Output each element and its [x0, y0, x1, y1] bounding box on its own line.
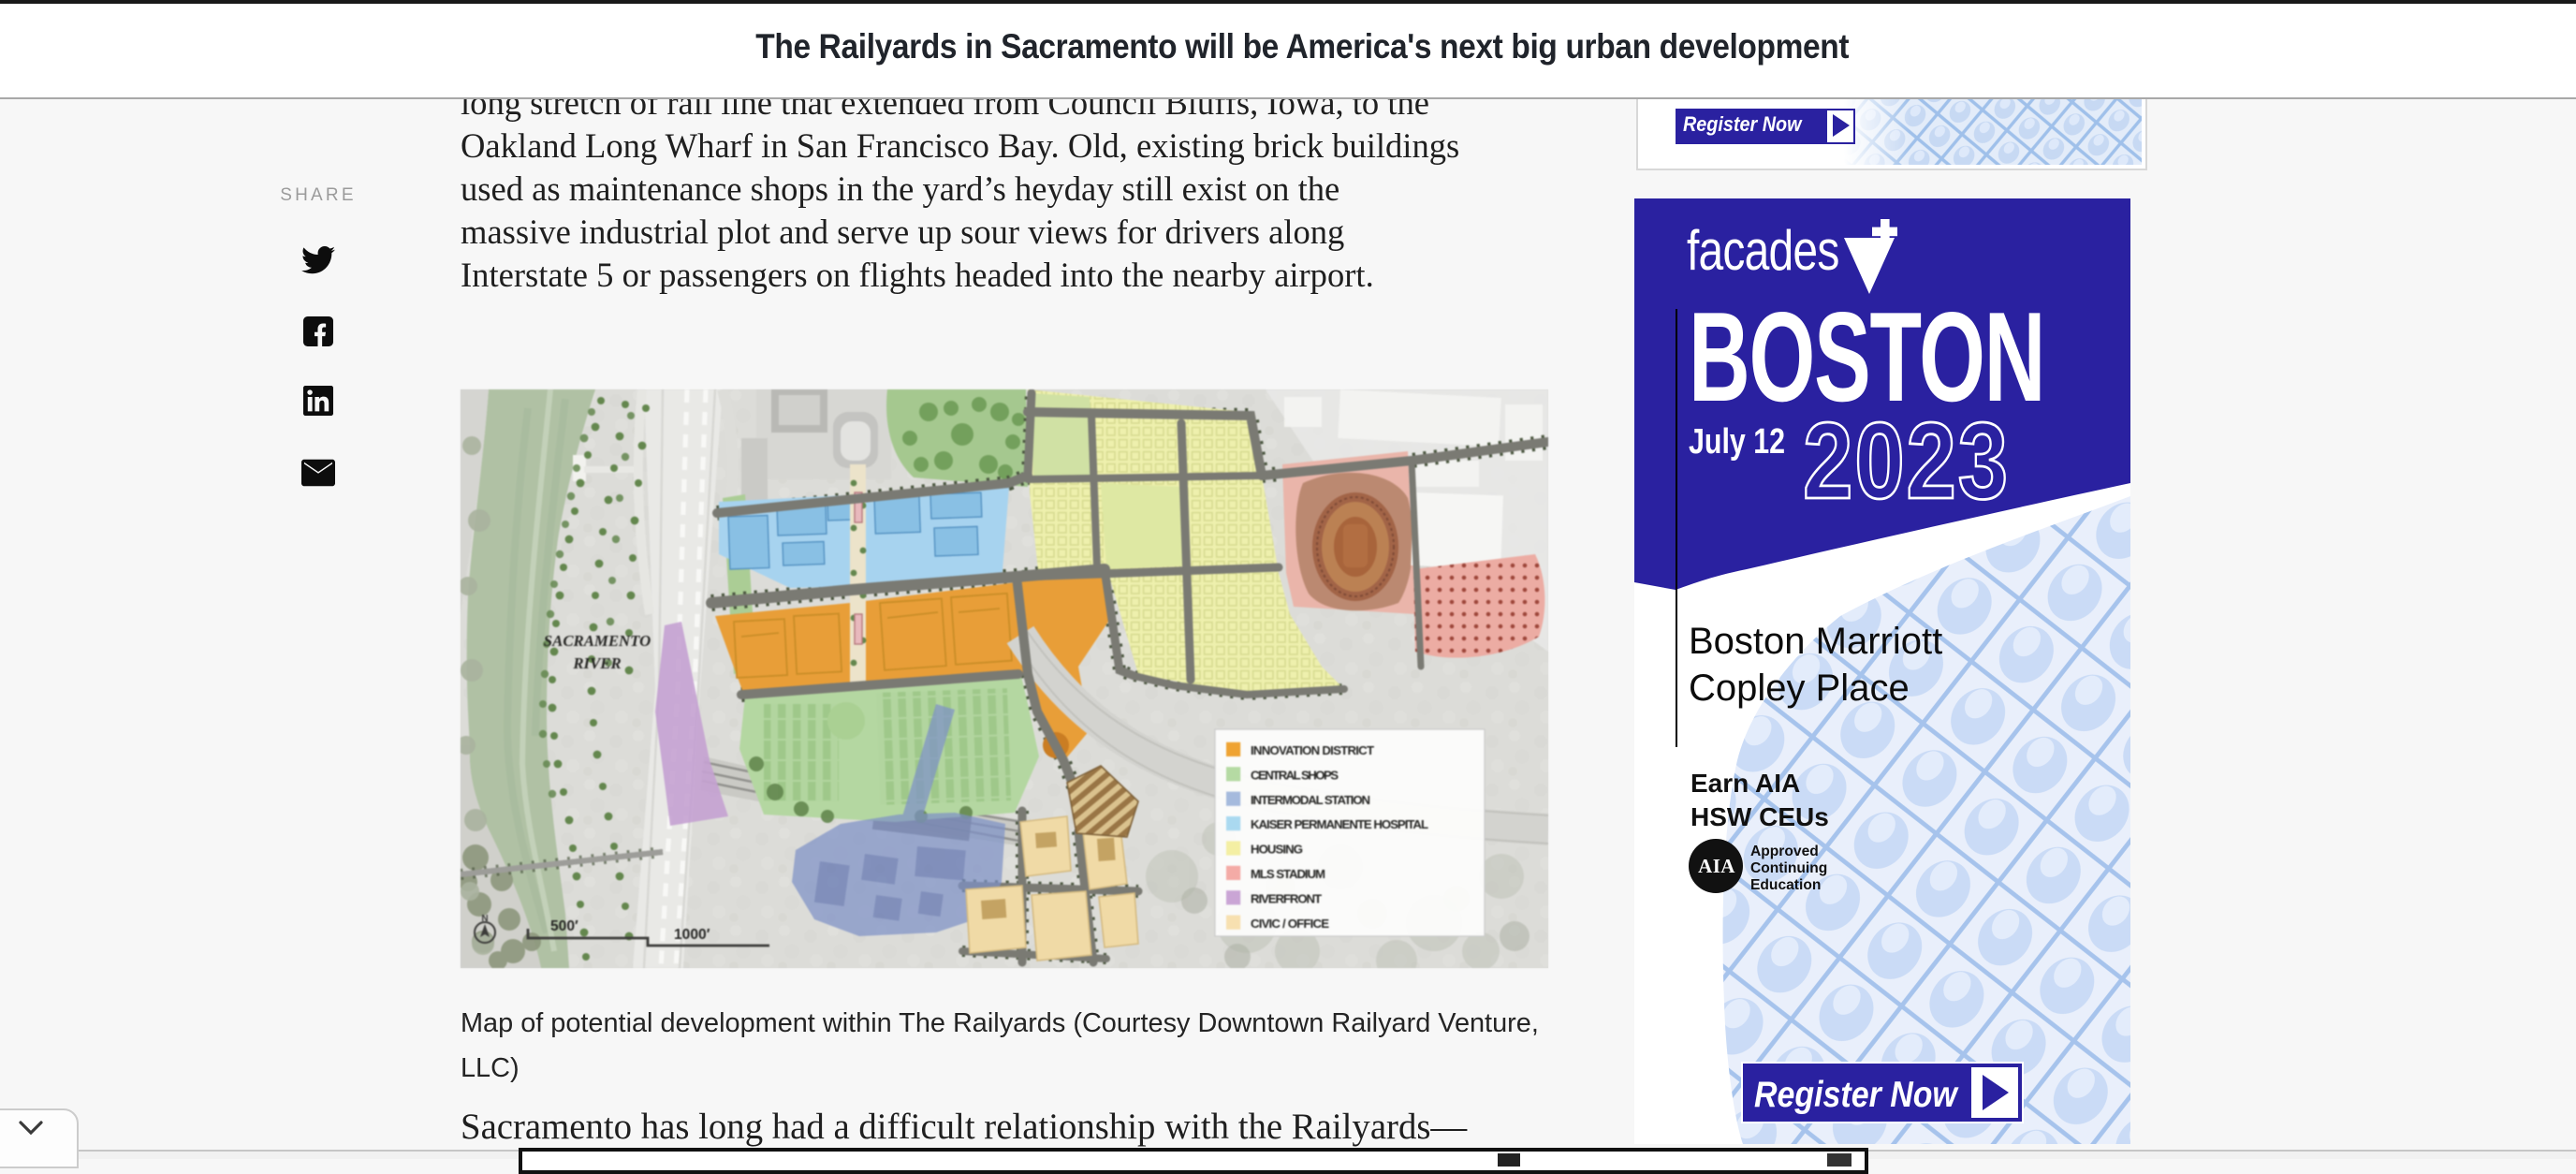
- svg-text:N: N: [481, 914, 488, 924]
- svg-text:SACRAMENTO: SACRAMENTO: [544, 632, 651, 650]
- svg-text:1000′: 1000′: [674, 927, 710, 943]
- svg-text:RIVER: RIVER: [572, 654, 621, 672]
- svg-text:500′: 500′: [550, 918, 578, 934]
